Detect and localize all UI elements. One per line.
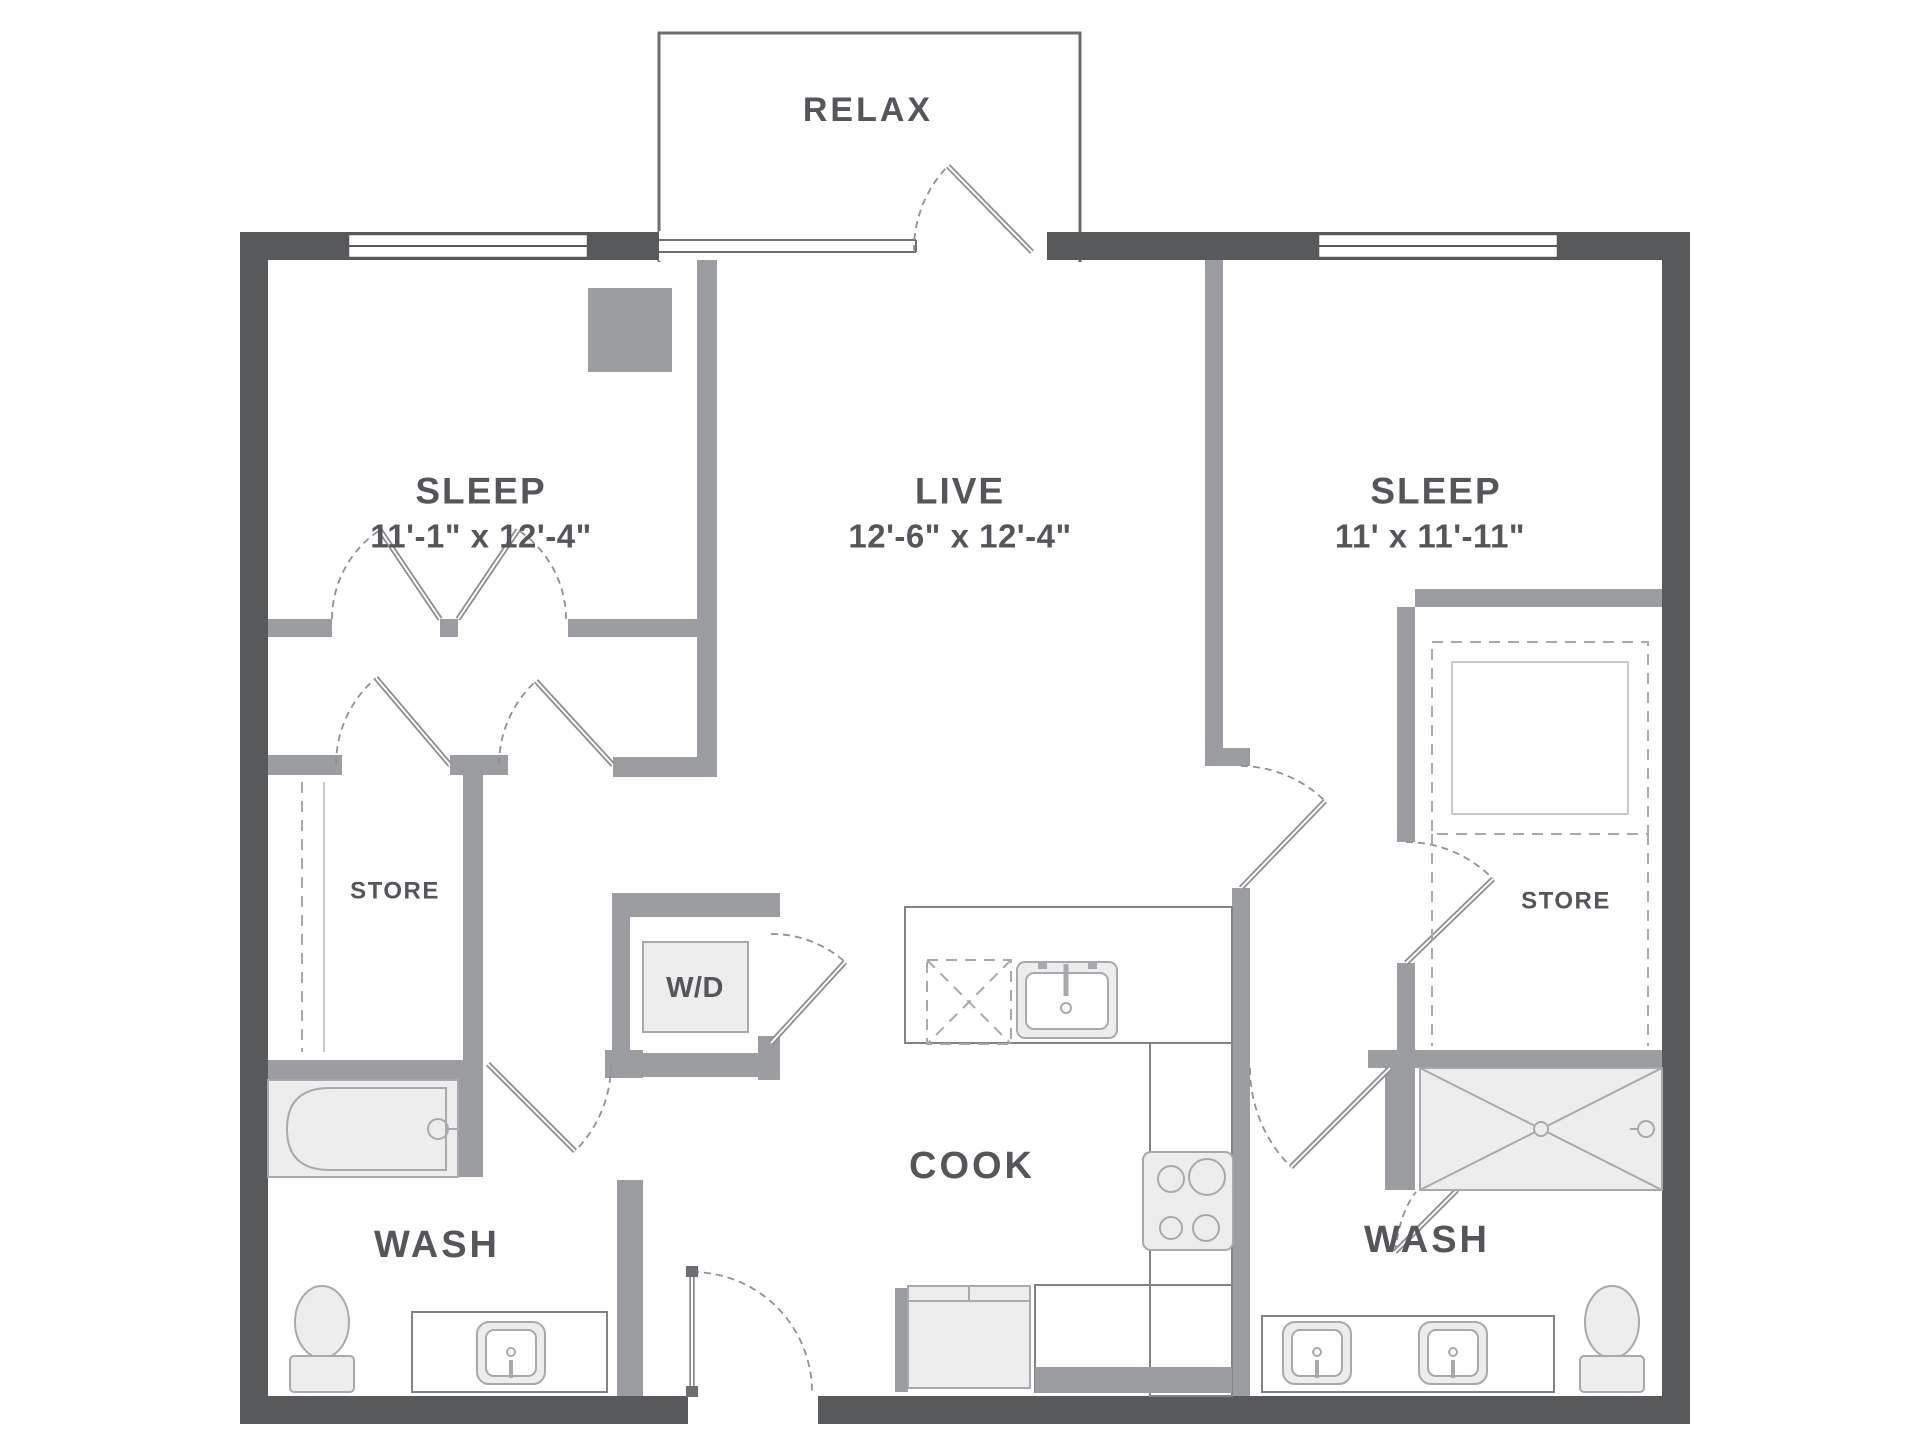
- dishwasher: [927, 960, 1011, 1044]
- closet-right-label: STORE: [1521, 888, 1611, 915]
- kitchen-sink: [1017, 962, 1117, 1038]
- wall-wd-bottom: [612, 1053, 760, 1077]
- utility-chase: [588, 288, 672, 372]
- storeR-shelf-inner: [1452, 662, 1628, 814]
- closet-marks: [302, 642, 1648, 1052]
- wall-shower-north: [1415, 1050, 1662, 1068]
- stove-body: [1143, 1152, 1233, 1250]
- wd-door-leaf-inner: [771, 962, 845, 1043]
- wall-bedL-south-post: [440, 619, 458, 637]
- vanity-left: [412, 1312, 607, 1392]
- bedroom-left-dimensions: 11'-1" x 12'-4": [370, 518, 591, 555]
- wall-tub-north: [268, 1060, 483, 1080]
- storeR-door-arc: [1406, 842, 1493, 879]
- bedroom-right-dimensions: 11' x 11'-11": [1335, 518, 1525, 555]
- doors: [332, 530, 1493, 1397]
- wall-right: [1662, 232, 1690, 1424]
- bathtub: [268, 1080, 458, 1177]
- wall-wd-post: [758, 1036, 780, 1080]
- living-dimensions: 12'-6" x 12'-4": [848, 518, 1071, 555]
- bedR-door-leaf-inner: [1241, 801, 1325, 888]
- floor-plan: RELAX: [0, 0, 1920, 1447]
- vestibule-door-arc: [499, 681, 536, 765]
- bathR-door-arc: [1250, 1068, 1291, 1167]
- toiletL-tank: [290, 1356, 354, 1392]
- toiletR-bowl: [1585, 1286, 1639, 1358]
- storeL-door-arc: [336, 678, 376, 765]
- balcony: RELAX: [659, 33, 1080, 262]
- bath-left-label: WASH: [374, 1224, 500, 1266]
- balcony-label: RELAX: [803, 91, 933, 129]
- entry-door-cap-bottom: [686, 1386, 698, 1397]
- shower-drain: [1534, 1122, 1548, 1136]
- kitchen-faucet-handle-right: [1088, 962, 1097, 969]
- laundry-closet: W/D: [643, 942, 748, 1032]
- wall-bedR-south: [1415, 589, 1662, 607]
- wall-left: [240, 232, 268, 1424]
- toilet-right: [1580, 1286, 1644, 1392]
- vestibule-door-leaf-inner: [536, 681, 613, 765]
- laundry-label: W/D: [666, 972, 724, 1004]
- wall-bottom: [240, 1396, 1690, 1424]
- balcony-opening: [659, 231, 1047, 261]
- floor-plan-page: RELAX: [0, 0, 1920, 1447]
- entry-door-arc: [692, 1272, 812, 1392]
- entry-opening: [688, 1395, 818, 1425]
- bath-right-label: WASH: [1364, 1219, 1490, 1261]
- wall-hall-top: [613, 757, 717, 777]
- wall-bedR-west: [1205, 260, 1223, 766]
- storeR-shelf-dashed: [1432, 642, 1648, 834]
- dishwasher-x: [927, 960, 1011, 1044]
- wall-bathL-east: [617, 1180, 643, 1396]
- wall-storeR-west-2: [1397, 963, 1415, 1050]
- toiletL-bowl: [295, 1286, 349, 1358]
- wall-kitchen-east: [1232, 888, 1250, 1396]
- kitchen-faucet-handle-left: [1038, 962, 1047, 969]
- wall-tub-east: [457, 1080, 483, 1177]
- wall-wd-west: [612, 893, 630, 1077]
- bathR-door-leaf-inner: [1291, 1068, 1390, 1167]
- wall-bedL-east: [697, 260, 717, 777]
- shower: [1420, 1068, 1662, 1190]
- entry-door-cap-top: [686, 1266, 698, 1277]
- bedroom-right-label: SLEEP: [1370, 471, 1501, 512]
- closet-left-label: STORE: [350, 878, 440, 905]
- wall-bedR-jog: [1205, 748, 1250, 766]
- shower-valve: [1638, 1121, 1654, 1137]
- bedR-door-arc: [1241, 766, 1325, 801]
- kitchen-label: COOK: [909, 1145, 1035, 1187]
- wd-door-arc: [771, 934, 845, 962]
- balcony-outline: [659, 33, 1080, 262]
- fridge: [908, 1286, 1030, 1388]
- bedroom-left-label: SLEEP: [415, 471, 546, 512]
- wall-bedL-south-1: [268, 619, 332, 637]
- toilet-left: [290, 1286, 354, 1392]
- wall-fridge-stub: [895, 1288, 908, 1392]
- stove: [1143, 1152, 1233, 1250]
- kitchen-counter-band: [1035, 1367, 1232, 1393]
- bathtub-outer: [268, 1080, 458, 1177]
- toiletR-tank: [1580, 1356, 1644, 1392]
- wall-storeL-east: [463, 775, 483, 1060]
- bathL-door-leaf-inner: [488, 1064, 575, 1151]
- wall-bedL-south-2: [568, 619, 717, 637]
- wall-wd-top: [612, 893, 780, 917]
- storeL-door-leaf-inner: [376, 678, 450, 765]
- wall-storeR-west-1: [1397, 607, 1415, 842]
- living-label: LIVE: [915, 471, 1005, 512]
- wall-storeL-top-1: [268, 755, 342, 775]
- vanity-right: [1262, 1316, 1554, 1392]
- storeR-door-leaf-inner: [1406, 879, 1493, 963]
